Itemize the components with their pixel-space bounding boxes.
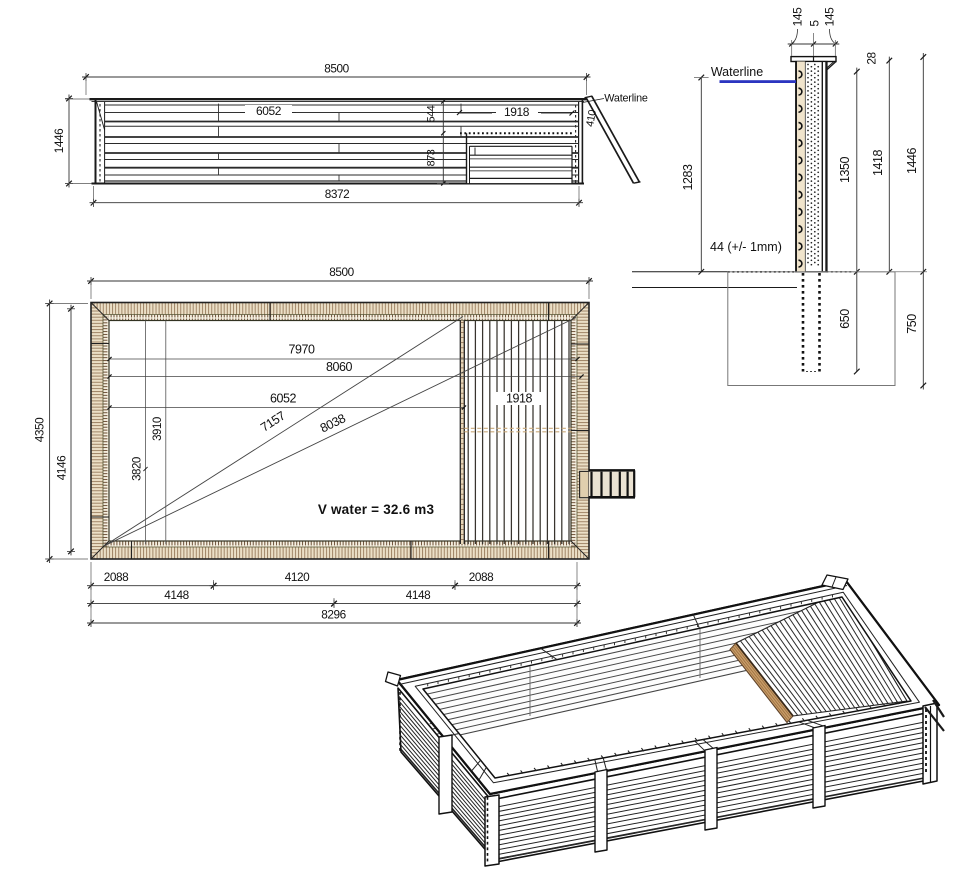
svg-text:8372: 8372 bbox=[325, 187, 349, 201]
svg-text:Waterline: Waterline bbox=[604, 93, 648, 105]
svg-text:1918: 1918 bbox=[506, 392, 533, 406]
svg-text:544: 544 bbox=[426, 105, 438, 122]
svg-text:V water = 32.6 m3: V water = 32.6 m3 bbox=[318, 502, 435, 517]
svg-text:2088: 2088 bbox=[104, 570, 129, 584]
svg-text:8500: 8500 bbox=[324, 62, 349, 76]
svg-text:4350: 4350 bbox=[33, 417, 47, 442]
svg-text:873: 873 bbox=[426, 149, 438, 166]
svg-text:650: 650 bbox=[838, 309, 852, 329]
svg-text:8060: 8060 bbox=[326, 360, 353, 374]
svg-text:8296: 8296 bbox=[321, 608, 346, 622]
svg-text:1446: 1446 bbox=[52, 128, 66, 153]
svg-text:1918: 1918 bbox=[504, 105, 530, 119]
svg-text:4120: 4120 bbox=[285, 570, 310, 584]
svg-text:1446: 1446 bbox=[905, 148, 919, 175]
svg-text:750: 750 bbox=[905, 314, 919, 334]
svg-text:4146: 4146 bbox=[55, 455, 69, 480]
svg-text:1418: 1418 bbox=[871, 150, 885, 177]
svg-text:7970: 7970 bbox=[288, 343, 315, 357]
svg-text:2088: 2088 bbox=[469, 570, 494, 584]
svg-text:3820: 3820 bbox=[132, 457, 144, 481]
svg-text:145: 145 bbox=[823, 7, 837, 26]
svg-text:6052: 6052 bbox=[256, 104, 282, 118]
svg-text:1283: 1283 bbox=[681, 164, 695, 191]
svg-text:145: 145 bbox=[791, 7, 805, 26]
svg-text:1350: 1350 bbox=[838, 157, 852, 184]
svg-text:44 (+/- 1mm): 44 (+/- 1mm) bbox=[710, 240, 782, 254]
svg-text:4148: 4148 bbox=[164, 588, 189, 602]
svg-text:8500: 8500 bbox=[329, 265, 354, 279]
svg-text:Waterline: Waterline bbox=[711, 65, 763, 79]
svg-text:5: 5 bbox=[807, 20, 821, 27]
svg-text:6052: 6052 bbox=[270, 392, 297, 406]
svg-text:28: 28 bbox=[865, 52, 879, 65]
svg-text:4148: 4148 bbox=[406, 588, 431, 602]
svg-text:3910: 3910 bbox=[152, 417, 164, 441]
